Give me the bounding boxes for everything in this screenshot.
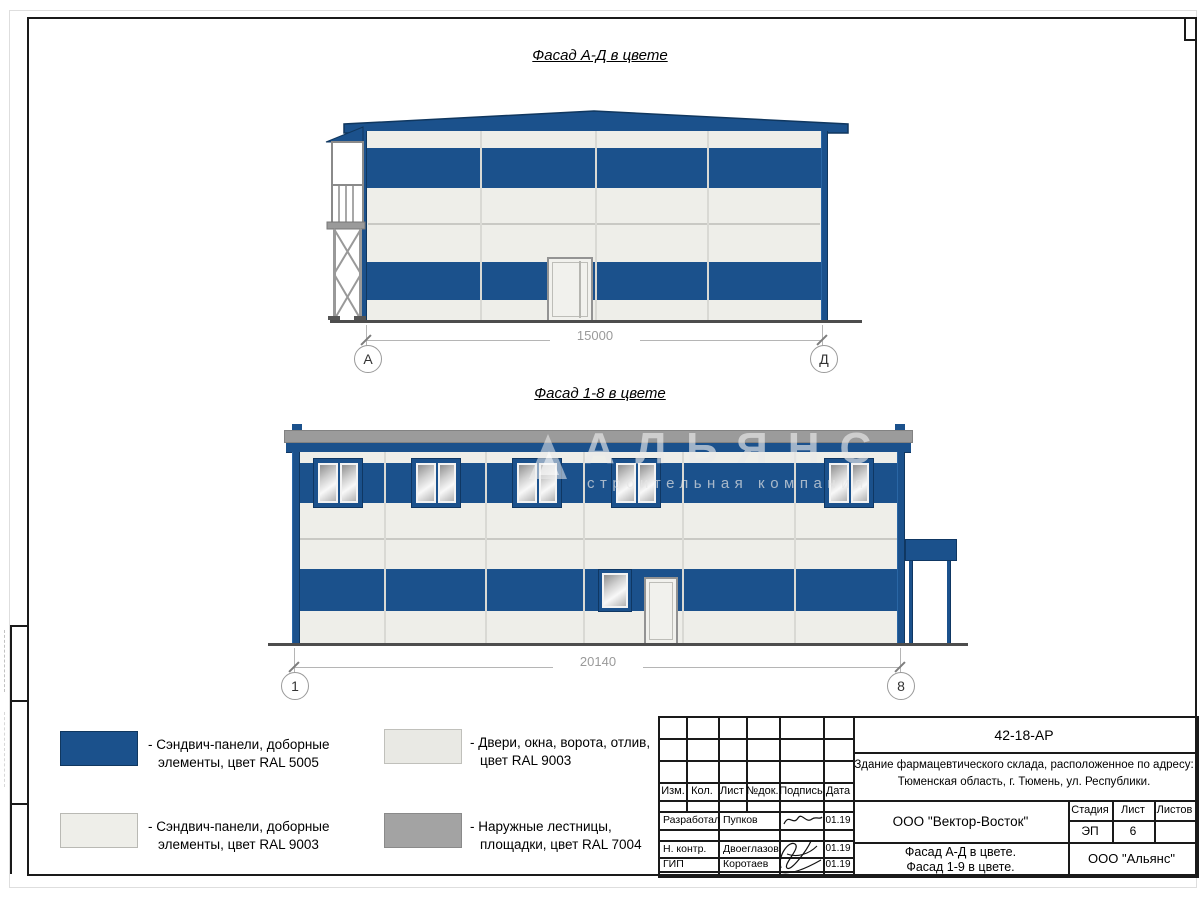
stamp-col-ndok: №док. <box>746 782 779 800</box>
canopy-post <box>909 561 913 644</box>
blue-panel-stripe <box>360 148 828 188</box>
corner-trim <box>292 452 300 645</box>
panel-joint <box>485 452 487 645</box>
stamp-name: Коротаев <box>720 857 779 871</box>
facade-18-title: Фасад 1-8 в цвете <box>430 385 770 402</box>
panel-joint <box>707 131 709 322</box>
stamp-role: ГИП <box>660 857 718 871</box>
corner-trim <box>897 452 905 645</box>
customer-name: ООО "Альянс" <box>1068 842 1195 875</box>
legend-line: - Двери, окна, ворота, отлив, <box>470 734 650 752</box>
legend-line: элементы, цвет RAL 5005 <box>148 754 330 772</box>
sheet-title-line1: Фасад А-Д в цвете. <box>853 844 1068 859</box>
door-leaf <box>649 582 673 640</box>
left-stamp-faint-text <box>4 630 6 692</box>
axis-marker-1: 1 <box>281 672 309 700</box>
legend-item: - Двери, окна, ворота, отлив, цвет RAL 9… <box>470 734 650 770</box>
legend-swatch-ral7004 <box>384 813 462 848</box>
stamp-col-list: Лист <box>718 782 746 800</box>
facade-18-wall <box>292 452 905 645</box>
grid-line <box>660 738 855 740</box>
doc-number: 42-18-АР <box>853 718 1195 752</box>
grid-line <box>660 800 855 802</box>
window-pane <box>318 463 338 503</box>
stamp-date: 01.19 <box>823 811 853 829</box>
window <box>313 458 363 508</box>
grid-line <box>660 829 855 831</box>
dimension-label: 15000 <box>550 328 640 343</box>
window-pane <box>539 463 557 503</box>
grid-line <box>660 760 855 762</box>
axis-marker-d: Д <box>810 345 838 373</box>
roof-gray-strip <box>284 430 913 443</box>
stamp-col-podpis: Подпись <box>779 782 823 800</box>
panel-joint <box>368 223 820 225</box>
stamp-col-data: Дата <box>823 782 853 800</box>
dimension-label: 20140 <box>553 654 643 669</box>
entrance-door <box>644 577 678 645</box>
window-pane <box>517 463 537 503</box>
axis-marker-a: А <box>354 345 382 373</box>
facade-ad-wall <box>360 131 828 322</box>
legend-swatch-ral9003 <box>60 813 138 848</box>
window-pane <box>851 463 869 503</box>
left-stamp-faint-text <box>4 712 6 787</box>
extension-line <box>900 648 901 674</box>
legend-swatch-doors <box>384 729 462 764</box>
left-stamp-line <box>10 803 28 805</box>
legend-swatch-ral5005 <box>60 731 138 766</box>
panel-joint <box>794 452 796 645</box>
window <box>411 458 461 508</box>
legend-line: - Наружные лестницы, <box>470 818 642 836</box>
panel-joint <box>583 452 585 645</box>
window <box>611 458 661 508</box>
roof-blue-strip <box>286 443 911 452</box>
stage-label: Стадия <box>1068 800 1112 820</box>
drawing-sheet: Фасад А-Д в цвете <box>0 0 1200 900</box>
legend-item: - Наружные лестницы, площадки, цвет RAL … <box>470 818 642 854</box>
frame-corner-box <box>1184 19 1196 41</box>
window-pane <box>602 573 628 608</box>
sheets-label: Листов <box>1154 800 1195 820</box>
sheet-title-line2: Фасад 1-9 в цвете. <box>853 859 1068 874</box>
signature <box>773 834 827 875</box>
panel-joint <box>384 452 386 645</box>
panel-joint <box>480 131 482 322</box>
legend-line: - Сэндвич-панели, доборные <box>148 736 330 754</box>
stamp-role: Н. контр. <box>660 840 718 857</box>
legend-line: цвет RAL 9003 <box>470 752 650 770</box>
legend-line: площадки, цвет RAL 7004 <box>470 836 642 854</box>
window-pane <box>416 463 436 503</box>
door-leaf <box>552 262 588 317</box>
project-address-line2: Тюменская область, г. Тюмень, ул. Респуб… <box>853 773 1195 791</box>
extension-line <box>294 648 295 674</box>
legend-item: - Сэндвич-панели, доборные элементы, цве… <box>148 818 330 854</box>
signature <box>780 811 823 829</box>
left-stamp-line <box>10 625 12 874</box>
stamp-name: Двоеглазов <box>720 840 779 857</box>
axis-marker-8: 8 <box>887 672 915 700</box>
stamp-role: Разработал <box>660 811 718 829</box>
stamp-date: 01.19 <box>823 840 853 857</box>
left-stamp-line <box>10 700 28 702</box>
sheet-label: Лист <box>1112 800 1154 820</box>
legend-line: элементы, цвет RAL 9003 <box>148 836 330 854</box>
canopy <box>905 539 957 561</box>
window <box>824 458 874 508</box>
window-pane <box>638 463 656 503</box>
ground-line <box>330 320 862 323</box>
panel-joint <box>595 131 597 322</box>
panel-joint <box>682 452 684 645</box>
stair-tower <box>322 122 370 324</box>
window-pane <box>340 463 358 503</box>
legend-line: - Сэндвич-панели, доборные <box>148 818 330 836</box>
stamp-name: Пупков <box>720 811 779 829</box>
door-leaf-divider <box>579 261 581 318</box>
corner-trim <box>821 131 828 322</box>
window-pane <box>438 463 456 503</box>
window <box>512 458 562 508</box>
sheet-number: 6 <box>1112 820 1154 842</box>
canopy-post <box>947 561 951 644</box>
window-pane <box>829 463 849 503</box>
facade-ad-title: Фасад А-Д в цвете <box>430 47 770 64</box>
legend-item: - Сэндвич-панели, доборные элементы, цве… <box>148 736 330 772</box>
small-window <box>598 569 632 612</box>
title-block: Изм. Кол. Лист №док. Подпись Дата Разраб… <box>658 716 1199 878</box>
panel-joint <box>300 538 897 540</box>
entrance-door <box>547 257 593 322</box>
stamp-date: 01.19 <box>823 857 853 871</box>
stage-value: ЭП <box>1068 820 1112 842</box>
stamp-col-izm: Изм. <box>660 782 686 800</box>
developer-name: ООО "Вектор-Восток" <box>853 800 1068 842</box>
left-stamp-line <box>10 625 28 627</box>
grid-line <box>853 752 1195 754</box>
window-pane <box>616 463 636 503</box>
stamp-col-kol: Кол. <box>686 782 718 800</box>
ground-line <box>268 643 968 646</box>
blue-panel-stripe <box>360 262 828 300</box>
project-address-line1: Здание фармацевтического склада, располо… <box>853 756 1195 774</box>
